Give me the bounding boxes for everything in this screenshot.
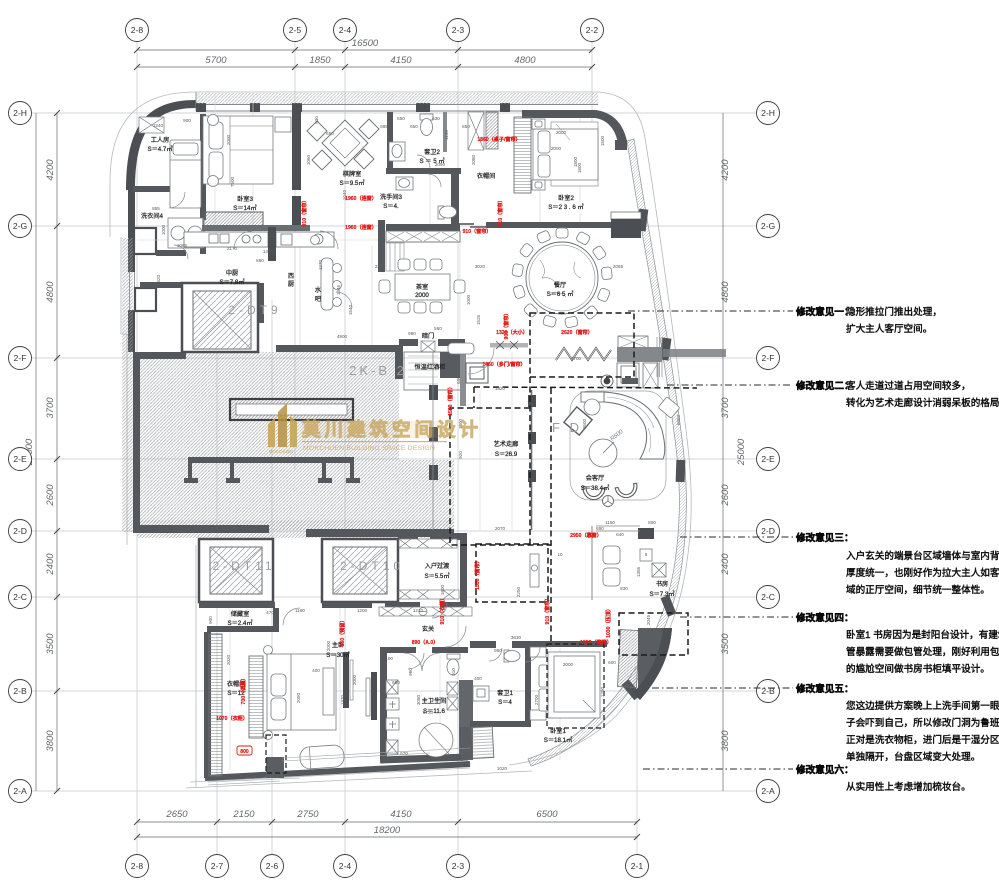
svg-text:玄关: 玄关: [422, 625, 434, 633]
svg-text:910（窗帘）: 910（窗帘）: [544, 596, 551, 625]
svg-text:850（预留）: 850（预留）: [339, 618, 346, 647]
svg-text:5700: 5700: [205, 55, 227, 66]
svg-text:2950（靠窗）: 2950（靠窗）: [570, 532, 602, 539]
svg-text:茶室: 茶室: [416, 283, 428, 291]
svg-text:980: 980: [408, 331, 416, 336]
svg-text:1030（压顶）: 1030（压顶）: [605, 606, 612, 638]
svg-text:艺术走廊: 艺术走廊: [494, 440, 519, 448]
svg-text:域的正厅空间，细节统一整体性。: 域的正厅空间，细节统一整体性。: [846, 584, 990, 596]
svg-text:MOKCHUEN: MOKCHUEN: [269, 449, 293, 454]
svg-text:25000: 25000: [736, 438, 747, 466]
svg-text:18200: 18200: [374, 825, 401, 836]
svg-text:2080: 2080: [471, 154, 476, 165]
svg-text:1540: 1540: [348, 304, 353, 315]
svg-text:S＝9.5㎡: S＝9.5㎡: [339, 179, 365, 187]
svg-text:2065: 2065: [613, 264, 624, 269]
svg-text:1000: 1000: [161, 224, 166, 235]
svg-text:1000: 1000: [466, 294, 471, 305]
svg-text:S＝7.8㎡: S＝7.8㎡: [219, 278, 245, 286]
svg-text:470: 470: [266, 610, 274, 615]
svg-text:4800: 4800: [514, 55, 536, 66]
svg-text:600: 600: [608, 660, 616, 665]
svg-text:衣帽间: 衣帽间: [477, 172, 496, 180]
svg-text:恒温红酒柜: 恒温红酒柜: [415, 363, 446, 371]
svg-text:会客厅: 会客厅: [586, 474, 605, 482]
svg-text:1370: 1370: [340, 694, 345, 705]
svg-text:2000: 2000: [226, 134, 231, 145]
svg-text:2650: 2650: [165, 809, 188, 820]
svg-text:2-3: 2-3: [452, 25, 465, 35]
svg-text:6500: 6500: [536, 809, 558, 820]
svg-text:修改意见五：: 修改意见五：: [795, 683, 854, 695]
svg-text:7500: 7500: [230, 176, 235, 187]
svg-text:910: 910: [451, 668, 456, 676]
svg-text:转化为艺术走廊设计消弱呆板的格局。: 转化为艺术走廊设计消弱呆板的格局。: [846, 397, 999, 409]
svg-text:9500: 9500: [582, 418, 587, 429]
svg-text:910（窗帘）: 910（窗帘）: [301, 198, 308, 227]
svg-text:2-2: 2-2: [586, 25, 599, 35]
svg-text:1620: 1620: [156, 274, 161, 285]
svg-text:1960（连窗）: 1960（连窗）: [345, 224, 377, 231]
svg-text:修改意见三：: 修改意见三：: [795, 532, 854, 544]
svg-text:2-6: 2-6: [266, 861, 279, 871]
svg-text:920: 920: [458, 451, 463, 459]
svg-text:1210: 1210: [413, 608, 424, 613]
svg-text:S＝14㎡: S＝14㎡: [233, 204, 257, 212]
svg-text:的尴尬空间做书房书柜填平设计。: 的尴尬空间做书房书柜填平设计。: [846, 663, 990, 675]
svg-text:2-DT10: 2-DT10: [340, 559, 404, 573]
svg-text:1100: 1100: [383, 656, 393, 661]
svg-text:910（衣帽）: 910（衣帽）: [439, 596, 446, 625]
svg-text:厚度统一，也刚好作为拉大主人如客厅区: 厚度统一，也刚好作为拉大主人如客厅区: [846, 567, 999, 579]
svg-text:2330: 2330: [375, 264, 386, 269]
svg-text:从实用性上考虑增加梳妆台。: 从实用性上考虑增加梳妆台。: [846, 781, 971, 793]
svg-text:入户玄关的端景台区域墙体与室内背景墙: 入户玄关的端景台区域墙体与室内背景墙: [846, 550, 999, 562]
svg-text:修改意见六：: 修改意见六：: [795, 764, 854, 776]
svg-text:3500: 3500: [720, 633, 731, 655]
svg-text:1850: 1850: [309, 55, 331, 66]
svg-text:1180: 1180: [295, 608, 305, 613]
svg-text:S＝7.3㎡: S＝7.3㎡: [649, 590, 675, 598]
svg-text:1500: 1500: [600, 135, 605, 146]
svg-text:2-D: 2-D: [13, 526, 27, 536]
svg-text:1860（桌子/窗帘）: 1860（桌子/窗帘）: [477, 136, 520, 143]
svg-text:1100: 1100: [444, 130, 449, 140]
svg-text:S＝38.4㎡: S＝38.4㎡: [581, 484, 610, 492]
svg-text:2-4: 2-4: [339, 861, 352, 871]
svg-text:2-B: 2-B: [761, 686, 775, 696]
svg-text:S＝30㎡: S＝30㎡: [326, 651, 350, 659]
svg-text:2-C: 2-C: [13, 592, 27, 602]
svg-text:子会吓到自己，所以修改门洞为鲁班尺寸，: 子会吓到自己，所以修改门洞为鲁班尺寸，: [846, 717, 999, 729]
svg-text:2-4: 2-4: [339, 25, 352, 35]
svg-text:890（A.0）: 890（A.0）: [412, 640, 439, 646]
svg-text:1085: 1085: [177, 243, 188, 248]
svg-text:2-5: 2-5: [289, 25, 302, 35]
svg-text:2600: 2600: [720, 484, 731, 507]
svg-text:1355: 1355: [636, 566, 641, 577]
svg-text:修改意见一：: 修改意见一：: [795, 306, 854, 318]
svg-text:1200: 1200: [357, 608, 368, 613]
svg-text:S＝6 5 ㎡: S＝6 5 ㎡: [547, 290, 575, 298]
svg-text:2750: 2750: [296, 809, 319, 820]
svg-text:4200: 4200: [45, 159, 56, 181]
svg-text:2-H: 2-H: [13, 108, 27, 118]
svg-text:900: 900: [183, 118, 191, 123]
svg-text:2000: 2000: [326, 640, 331, 651]
svg-text:2620（窗帘）: 2620（窗帘）: [561, 329, 593, 336]
svg-text:单独隔开，台盘区域变大处理。: 单独隔开，台盘区域变大处理。: [846, 751, 980, 763]
svg-text:2000: 2000: [556, 130, 567, 135]
svg-text:1460（多门/窗帘）: 1460（多门/窗帘）: [482, 361, 525, 368]
svg-text:1820: 1820: [495, 386, 506, 391]
svg-text:暗门: 暗门: [422, 332, 434, 340]
svg-text:2600: 2600: [45, 484, 56, 507]
svg-text:2440: 2440: [435, 561, 446, 566]
svg-text:1470: 1470: [489, 722, 500, 727]
svg-text:900: 900: [208, 616, 213, 624]
svg-text:3700: 3700: [45, 397, 56, 419]
svg-text:S＝18.1㎡: S＝18.1㎡: [544, 736, 573, 744]
svg-text:S＝5.5㎡: S＝5.5㎡: [424, 572, 450, 580]
svg-text:4200: 4200: [720, 159, 731, 181]
svg-text:4800: 4800: [45, 281, 56, 303]
svg-text:2045: 2045: [646, 614, 651, 625]
svg-text:书房: 书房: [656, 580, 668, 588]
svg-text:3500: 3500: [45, 633, 56, 655]
svg-text:910（窗帘）: 910（窗帘）: [463, 228, 492, 235]
svg-text:3080: 3080: [416, 694, 421, 705]
svg-text:1150: 1150: [605, 520, 615, 525]
svg-text:650: 650: [326, 131, 334, 136]
svg-text:850: 850: [462, 124, 470, 129]
svg-text:2-1: 2-1: [631, 861, 644, 871]
svg-text:1240: 1240: [153, 123, 164, 128]
svg-text:洗衣间4: 洗衣间4: [141, 212, 164, 220]
svg-text:莫川建筑空间设计: 莫川建筑空间设计: [301, 419, 482, 440]
svg-text:700（调整）: 700（调整）: [240, 676, 247, 705]
svg-text:2-8: 2-8: [131, 25, 144, 35]
svg-text:S＝2 3 . 6 ㎡: S＝2 3 . 6 ㎡: [548, 203, 584, 211]
svg-text:960: 960: [408, 668, 413, 676]
svg-text:2-G: 2-G: [13, 221, 28, 231]
svg-text:910（窗帘）: 910（窗帘）: [497, 198, 504, 227]
svg-text:餐厅: 餐厅: [554, 281, 566, 289]
svg-text:2090: 2090: [435, 162, 446, 167]
svg-text:2020: 2020: [226, 654, 231, 665]
svg-text:卧室3: 卧室3: [237, 195, 253, 203]
svg-text:2-C: 2-C: [761, 592, 775, 602]
svg-text:1020: 1020: [497, 766, 508, 771]
svg-text:正对是洗衣物柜，进门后是干湿分区淋浴间: 正对是洗衣物柜，进门后是干湿分区淋浴间: [846, 734, 999, 746]
svg-text:4150: 4150: [390, 55, 412, 66]
svg-text:2000: 2000: [551, 146, 562, 151]
svg-text:客人走道过道占用空间较多，: 客人走道过道占用空间较多，: [846, 380, 971, 392]
svg-text:2700: 2700: [534, 694, 539, 705]
svg-text:2-E: 2-E: [13, 454, 27, 464]
svg-text:储藏室: 储藏室: [231, 610, 250, 618]
svg-text:2-3: 2-3: [452, 861, 465, 871]
svg-text:2400: 2400: [720, 553, 731, 576]
svg-text:3700: 3700: [720, 397, 731, 419]
svg-text:1070（衣柜）: 1070（衣柜）: [216, 715, 248, 722]
svg-text:2-A: 2-A: [13, 786, 27, 796]
svg-text:工人房: 工人房: [151, 136, 170, 144]
svg-text:560: 560: [434, 326, 442, 331]
svg-text:2020: 2020: [241, 602, 252, 607]
svg-text:F D: F D: [552, 420, 582, 435]
svg-text:650: 650: [410, 124, 418, 129]
svg-text:卧室1: 卧室1: [550, 727, 566, 735]
svg-text:400: 400: [474, 676, 482, 681]
svg-text:860: 860: [256, 258, 264, 263]
svg-text:S＝2.4㎡: S＝2.4㎡: [227, 619, 253, 627]
svg-text:2-7: 2-7: [211, 861, 224, 871]
svg-text:吧: 吧: [315, 296, 321, 303]
svg-text:6950: 6950: [676, 414, 681, 425]
svg-text:3630: 3630: [511, 635, 522, 640]
svg-text:2250: 2250: [516, 586, 521, 597]
svg-text:690: 690: [596, 526, 604, 531]
svg-text:3800: 3800: [45, 730, 56, 752]
svg-text:4900: 4900: [337, 334, 348, 339]
svg-text:厨: 厨: [288, 281, 294, 288]
svg-text:2-A: 2-A: [761, 786, 775, 796]
svg-text:S＝4.7㎡: S＝4.7㎡: [147, 145, 173, 153]
svg-text:1960（连窗）: 1960（连窗）: [345, 195, 377, 202]
svg-text:6720: 6720: [423, 710, 434, 715]
svg-text:1550（窗帘）: 1550（窗帘）: [474, 558, 481, 590]
svg-text:1600: 1600: [440, 584, 445, 595]
svg-text:855: 855: [152, 206, 160, 211]
svg-text:1290: 1290: [600, 686, 605, 697]
svg-text:管暴露需要做包管处理，刚好利用包管多余: 管暴露需要做包管处理，刚好利用包管多余: [846, 646, 999, 658]
svg-text:2-E: 2-E: [761, 454, 775, 464]
svg-text:2K-B 2: 2K-B 2: [349, 363, 407, 378]
svg-text:4800: 4800: [720, 281, 731, 303]
svg-text:卧室2: 卧室2: [558, 194, 574, 202]
svg-text:650: 650: [397, 116, 405, 121]
svg-text:MOKCHUEN BUILDING SPACE DESIGN: MOKCHUEN BUILDING SPACE DESIGN: [303, 445, 435, 452]
svg-text:棋牌室: 棋牌室: [343, 170, 362, 178]
svg-text:2000: 2000: [352, 674, 357, 685]
svg-text:套卫1: 套卫1: [497, 689, 513, 697]
svg-text:2-DT9: 2-DT9: [228, 303, 281, 317]
svg-text:水: 水: [315, 286, 322, 294]
svg-text:3020: 3020: [475, 264, 486, 269]
svg-text:2-B: 2-B: [13, 686, 27, 696]
svg-text:中厨: 中厨: [226, 269, 238, 277]
svg-text:1700: 1700: [571, 356, 582, 361]
svg-text:800: 800: [240, 749, 249, 755]
svg-text:S＝4: S＝4: [498, 699, 512, 706]
svg-text:1330: 1330: [263, 249, 274, 254]
svg-text:2-F: 2-F: [14, 353, 27, 363]
svg-text:4150: 4150: [390, 809, 412, 820]
svg-text:830: 830: [620, 586, 628, 591]
svg-text:2-D: 2-D: [761, 526, 775, 536]
svg-text:950: 950: [494, 648, 502, 653]
svg-text:630: 630: [432, 116, 440, 121]
svg-text:1060: 1060: [306, 154, 311, 165]
svg-text:2050: 2050: [296, 692, 301, 703]
svg-text:卧室1 书房因为是封阳台设计，有建筑下水: 卧室1 书房因为是封阳台设计，有建筑下水: [846, 629, 999, 641]
svg-text:1270: 1270: [318, 259, 323, 270]
svg-text:2-H: 2-H: [761, 108, 775, 118]
svg-text:2070: 2070: [495, 526, 506, 531]
svg-text:2-G: 2-G: [761, 221, 776, 231]
svg-text:1800: 1800: [577, 162, 582, 173]
svg-text:洗手间3: 洗手间3: [380, 193, 403, 201]
svg-text:2150: 2150: [232, 809, 255, 820]
svg-text:400: 400: [312, 668, 320, 673]
svg-text:1320（大小）: 1320（大小）: [496, 329, 528, 336]
svg-text:S＝26.9: S＝26.9: [495, 451, 518, 458]
svg-text:1550（窗帘）: 1550（窗帘）: [580, 639, 612, 646]
svg-text:扩大主人客厅空间。: 扩大主人客厅空间。: [846, 323, 932, 335]
svg-text:您这边提供方案晚上上洗手间第一眼看到镜: 您这边提供方案晚上上洗手间第一眼看到镜: [846, 700, 999, 712]
svg-text:2-DT11: 2-DT11: [212, 559, 275, 573]
svg-text:930: 930: [314, 116, 319, 124]
svg-text:2-8: 2-8: [131, 861, 144, 871]
svg-text:620: 620: [436, 696, 444, 701]
svg-text:2-F: 2-F: [762, 353, 775, 363]
svg-text:修改意见二：: 修改意见二：: [795, 380, 854, 392]
svg-text:800: 800: [648, 520, 656, 525]
svg-text:2000: 2000: [563, 662, 574, 667]
svg-text:1520（窗帘）: 1520（窗帘）: [447, 384, 454, 416]
svg-text:西: 西: [288, 273, 294, 280]
svg-text:3800: 3800: [720, 730, 731, 752]
svg-text:套卫2: 套卫2: [424, 148, 440, 156]
svg-text:修改意见四：: 修改意见四：: [795, 612, 854, 624]
svg-text:1345: 1345: [336, 284, 341, 295]
svg-text:16500: 16500: [352, 38, 379, 49]
svg-text:2170: 2170: [227, 246, 238, 251]
svg-text:2400: 2400: [45, 553, 56, 576]
svg-text:隐形推拉门推出处理，: 隐形推拉门推出处理，: [846, 306, 942, 318]
svg-text:640: 640: [616, 532, 624, 537]
svg-text:2000: 2000: [415, 292, 429, 299]
svg-text:650: 650: [392, 680, 400, 685]
svg-text:1525: 1525: [476, 314, 481, 325]
svg-text:650: 650: [456, 376, 461, 384]
svg-text:1040: 1040: [342, 189, 347, 200]
svg-text:885: 885: [380, 124, 388, 129]
svg-text:S＝4.: S＝4.: [383, 203, 399, 210]
